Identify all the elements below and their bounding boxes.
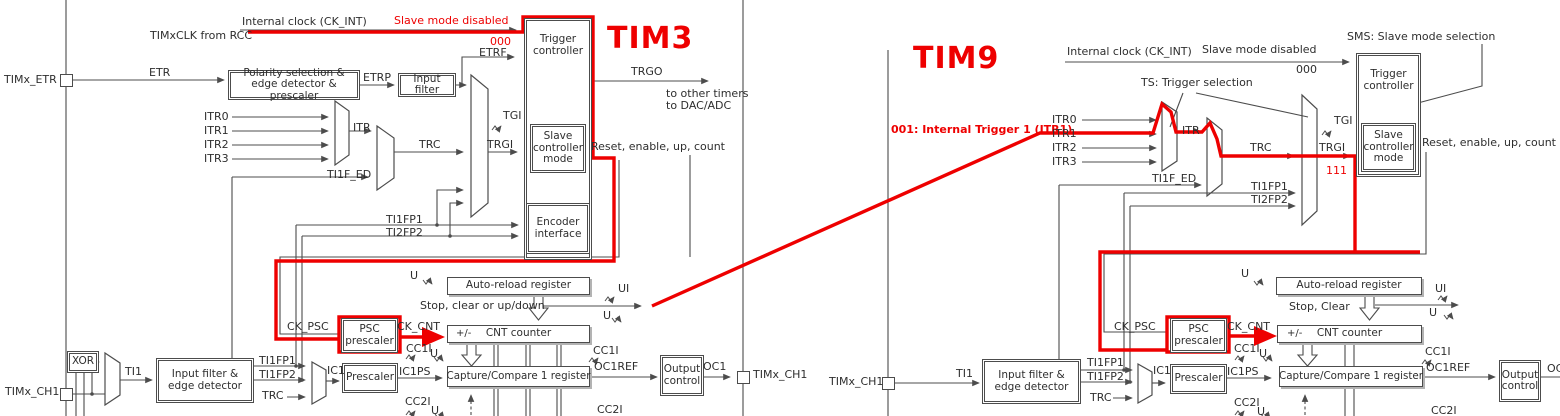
tim3-trgo-destinations: to other timers to DAC/ADC bbox=[666, 88, 748, 112]
tim9-trc-channel-label: TRC bbox=[1090, 392, 1112, 404]
tim9-itr-label: ITR bbox=[1182, 125, 1200, 137]
tim9-ti1-label: TI1 bbox=[956, 368, 973, 380]
tim9-ic1-mux bbox=[1138, 364, 1152, 403]
tim3-ic1-prescaler-box: Prescaler bbox=[344, 365, 396, 391]
tim3-ch1-output-pin bbox=[737, 371, 750, 384]
tim3-stop-clear-label: Stop, clear or up/down bbox=[420, 300, 545, 312]
tim9-internal-clock-label: Internal clock (CK_INT) bbox=[1067, 46, 1192, 58]
tim9-ch1-input-pin bbox=[882, 377, 895, 390]
tim9-ti1fed-label: TI1F_ED bbox=[1152, 173, 1196, 185]
tim3-trc-mux bbox=[377, 126, 394, 190]
tim9-capture-compare-box: Capture/Compare 1 register bbox=[1279, 366, 1423, 387]
tim9-stop-clear-label: Stop, Clear bbox=[1289, 301, 1350, 313]
tim3-ch1-input-pin bbox=[60, 388, 73, 401]
tim9-itr2-label: ITR2 bbox=[1052, 142, 1077, 154]
tim3-cc1i-right-label: CC1I bbox=[593, 345, 619, 357]
tim3-etrp-label: ETRP bbox=[363, 72, 391, 84]
tim3-itr0-label: ITR0 bbox=[204, 111, 229, 123]
tim9-ic1-prescaler-box: Prescaler bbox=[1172, 366, 1225, 392]
tim3-ic1-mux bbox=[312, 362, 326, 404]
tim3-trgi-mux bbox=[471, 75, 488, 217]
tim3-internal-clock-label: Internal clock (CK_INT) bbox=[242, 16, 367, 28]
tim3-u-arr-label: U bbox=[410, 270, 418, 282]
tim3-updown-label: +/- bbox=[456, 328, 471, 340]
tim9-auto-reload-box: Auto-reload register bbox=[1276, 277, 1422, 295]
tim9-cc2i-right-label: CC2I bbox=[1431, 405, 1457, 416]
tim3-ic1-label: IC1 bbox=[327, 365, 345, 377]
tim9-slave-mode-disabled-label: Slave mode disabled bbox=[1202, 44, 1317, 56]
tim3-input-filter-edge-box: Input filter & edge detector bbox=[158, 360, 252, 401]
tim3-itr2-label: ITR2 bbox=[204, 139, 229, 151]
tim3-u-cc2i-label: U bbox=[431, 405, 439, 416]
tim9-ti2fp2-trigger-label: TI2FP2 bbox=[1251, 194, 1288, 206]
tim9-ti1fp2-label: TI1FP2 bbox=[1087, 371, 1124, 383]
tim3-encoder-interface-box: Encoder interface bbox=[528, 205, 588, 252]
tim3-ckpsc-label: CK_PSC bbox=[287, 321, 329, 333]
tim9-ic1-label: IC1 bbox=[1153, 365, 1171, 377]
tim3-output-control-box: Output control bbox=[662, 357, 702, 394]
tim3-reset-enable-label: Reset, enable, up, count bbox=[591, 141, 725, 153]
tim3-auto-reload-box: Auto-reload register bbox=[447, 277, 590, 295]
tim3-slave-mode-disabled-label: Slave mode disabled bbox=[394, 15, 509, 27]
tim3-ckcnt-label: CK_CNT bbox=[397, 321, 440, 333]
tim9-itr1-annotation: 001: Internal Trigger 1 (ITR1) bbox=[891, 124, 1072, 136]
tim3-cc1i-left-label: CC1I bbox=[406, 343, 432, 355]
tim3-itr-mux bbox=[335, 101, 349, 165]
tim3-cc2i-left-label: CC2I bbox=[405, 396, 431, 408]
tim9-u-arr-label: U bbox=[1241, 268, 1249, 280]
tim3-trgo-label: TRGO bbox=[631, 66, 663, 78]
tim9-tgi-label: TGI bbox=[1334, 115, 1353, 127]
tim9-cc1i-right-label: CC1I bbox=[1425, 346, 1451, 358]
tim9-sms-note: SMS: Slave mode selection bbox=[1347, 31, 1495, 43]
tim3-ti1-label: TI1 bbox=[125, 366, 142, 378]
tim3-title: TIM3 bbox=[607, 24, 693, 54]
tim9-ch1-pin-label: TIMx_CH1 bbox=[829, 376, 883, 388]
tim3-itr3-label: ITR3 bbox=[204, 153, 229, 165]
tim3-etr-pin bbox=[60, 74, 73, 87]
tim3-ti1fp1-label: TI1FP1 bbox=[259, 355, 296, 367]
tim3-etrf-label: ETRF bbox=[479, 47, 507, 59]
tim3-trc-channel-label: TRC bbox=[262, 390, 284, 402]
tim9-cc1i-left-label: CC1I bbox=[1234, 343, 1260, 355]
tim9-ckpsc-label: CK_PSC bbox=[1114, 321, 1156, 333]
diagram-wires bbox=[0, 0, 1560, 416]
tim9-u-cc1i-label: U bbox=[1259, 348, 1267, 360]
tim9-psc-prescaler-box: PSC prescaler bbox=[1172, 320, 1225, 351]
tim3-xor-box: XOR bbox=[69, 353, 97, 371]
tim3-cc2i-right-label: CC2I bbox=[597, 404, 623, 416]
tim9-u-cc2i-label: U bbox=[1257, 406, 1265, 416]
tim3-oc1ref-label: OC1REF bbox=[594, 361, 638, 373]
tim9-u-update-label: U bbox=[1429, 307, 1437, 319]
tim9-title: TIM9 bbox=[913, 44, 999, 74]
tim3-etr-label: ETR bbox=[149, 67, 170, 79]
tim3-ti1fp2-label: TI1FP2 bbox=[259, 369, 296, 381]
tim3-timxclk-label: TIMxCLK from RCC bbox=[150, 30, 252, 42]
tim3-oc1-label: OC1 bbox=[703, 361, 726, 373]
tim3-polarity-box: Polarity selection & edge detector & pre… bbox=[230, 72, 358, 98]
tim3-ti1-mux bbox=[105, 353, 120, 405]
tim9-output-control-box: Output control bbox=[1501, 362, 1539, 400]
tim9-oc1-label: OC1 bbox=[1547, 363, 1560, 375]
tim3-u-update-label: U bbox=[603, 310, 611, 322]
tim9-input-filter-edge-box: Input filter & edge detector bbox=[984, 361, 1079, 402]
tim9-sms-bits-label: 000 bbox=[1296, 64, 1317, 76]
tim9-ui-label: UI bbox=[1435, 283, 1446, 295]
tim9-ts-bits-label: 111 bbox=[1326, 165, 1347, 177]
tim9-itr0-label: ITR0 bbox=[1052, 114, 1077, 126]
tim3-capture-compare-box: Capture/Compare 1 register bbox=[447, 366, 590, 387]
tim9-ts-note: TS: Trigger selection bbox=[1141, 77, 1253, 89]
tim3-slave-controller-box: Slave controller mode bbox=[532, 126, 584, 171]
tim9-ic1ps-label: IC1PS bbox=[1227, 366, 1259, 378]
tim3-ui-label: UI bbox=[618, 283, 629, 295]
tim3-etr-pin-label: TIMx_ETR bbox=[4, 74, 57, 86]
tim9-ckcnt-label: CK_CNT bbox=[1227, 321, 1270, 333]
tim3-tgi-label: TGI bbox=[503, 110, 522, 122]
tim3-trc-label: TRC bbox=[419, 139, 441, 151]
tim9-reset-enable-label: Reset, enable, up, count bbox=[1422, 137, 1556, 149]
tim3-ti1fed-label: TI1F_ED bbox=[327, 169, 371, 181]
tim3-trgi-label: TRGI bbox=[487, 139, 513, 151]
tim3-ch1-pin-label: TIMx_CH1 bbox=[5, 386, 59, 398]
tim9-trc-label: TRC bbox=[1250, 142, 1272, 154]
tim3-u-cc1i-label: U bbox=[430, 348, 438, 360]
tim9-trgi-mux bbox=[1302, 95, 1317, 225]
tim9-oc1ref-label: OC1REF bbox=[1426, 362, 1470, 374]
timer-block-diagram-comparison: Polarity selection & edge detector & pre… bbox=[0, 0, 1560, 416]
tim9-updown-label: +/- bbox=[1287, 328, 1302, 340]
tim3-ti1fp1-trigger-label: TI1FP1 bbox=[386, 214, 423, 226]
tim3-ch1-output-pin-label: TIMx_CH1 bbox=[753, 369, 807, 381]
tim3-ic1ps-label: IC1PS bbox=[399, 366, 431, 378]
tim3-itr-label: ITR bbox=[353, 122, 371, 134]
tim9-slave-controller-box: Slave controller mode bbox=[1363, 125, 1414, 170]
tim3-psc-prescaler-box: PSC prescaler bbox=[343, 320, 396, 351]
tim3-ti2fp2-trigger-label: TI2FP2 bbox=[386, 227, 423, 239]
tim9-itr1-label: ITR1 bbox=[1052, 128, 1077, 140]
tim9-cc2i-left-label: CC2I bbox=[1234, 397, 1260, 409]
tim3-input-filter-box: Input filter bbox=[400, 75, 454, 95]
tim9-ti1fp1-trigger-label: TI1FP1 bbox=[1251, 181, 1288, 193]
tim9-itr3-label: ITR3 bbox=[1052, 156, 1077, 168]
tim9-ti1fp1-label: TI1FP1 bbox=[1087, 357, 1124, 369]
tim9-trgi-label: TRGI bbox=[1319, 142, 1345, 154]
tim3-itr1-label: ITR1 bbox=[204, 125, 229, 137]
